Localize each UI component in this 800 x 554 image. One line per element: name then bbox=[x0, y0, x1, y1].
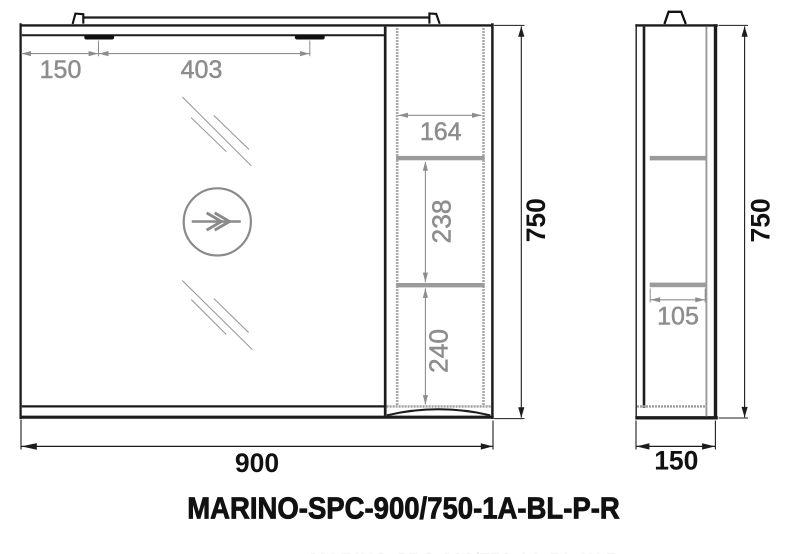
svg-text:164: 164 bbox=[420, 118, 462, 146]
svg-text:240: 240 bbox=[423, 329, 453, 373]
svg-text:150: 150 bbox=[40, 56, 82, 84]
svg-text:403: 403 bbox=[181, 56, 223, 84]
svg-text:105: 105 bbox=[657, 303, 699, 331]
svg-text:900: 900 bbox=[235, 448, 279, 478]
svg-text:238: 238 bbox=[426, 200, 456, 244]
svg-text:MARINO-SPC-900/750-1A-BL-W-R: MARINO-SPC-900/750-1A-BL-W-R bbox=[310, 547, 620, 554]
svg-text:750: 750 bbox=[521, 198, 551, 242]
svg-text:MARINO-SPC-900/750-1A-BL-P-R: MARINO-SPC-900/750-1A-BL-P-R bbox=[187, 491, 620, 526]
svg-text:750: 750 bbox=[745, 198, 775, 242]
svg-text:150: 150 bbox=[654, 445, 698, 475]
